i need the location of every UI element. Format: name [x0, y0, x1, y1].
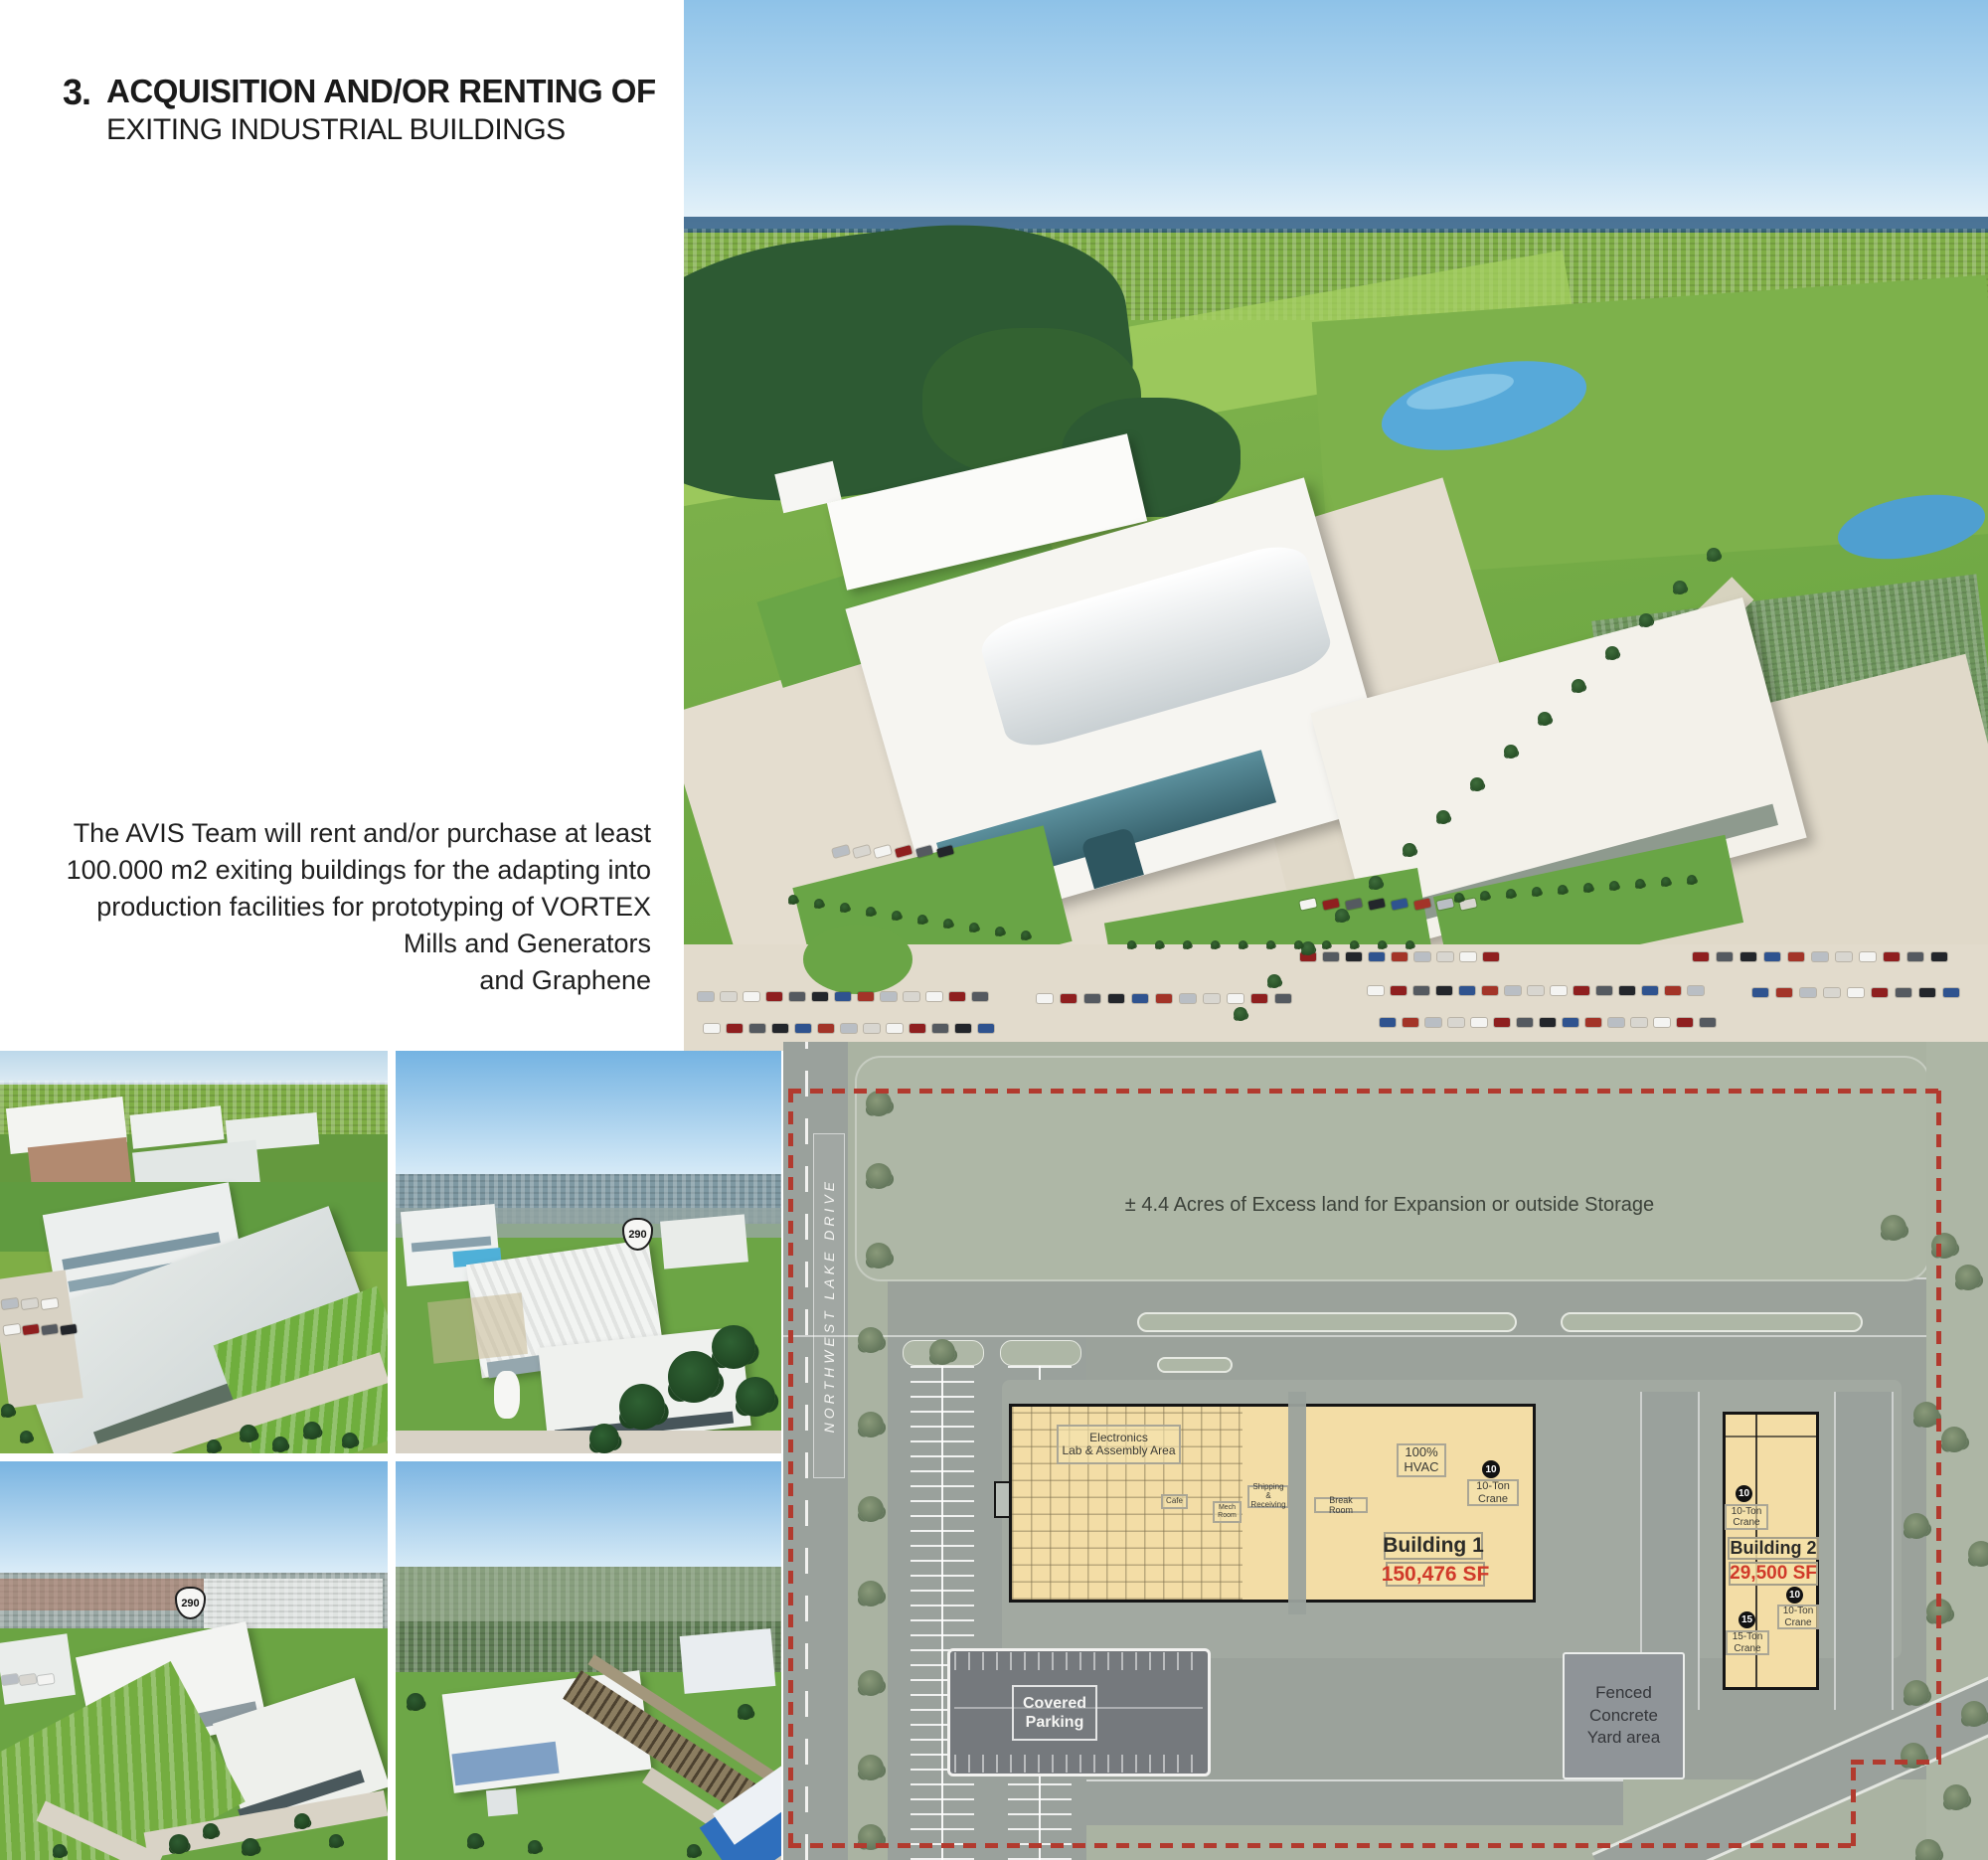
crane-badge-15: 15	[1739, 1611, 1755, 1628]
break-room-label: Break Room	[1314, 1497, 1368, 1513]
tree-icon	[1183, 940, 1192, 949]
car-icon	[1654, 1018, 1670, 1027]
crane-badge-10: 10	[1482, 1460, 1500, 1478]
break-room-text: Break Room	[1316, 1495, 1366, 1515]
car-icon	[1392, 952, 1408, 961]
car-icon	[1896, 988, 1911, 997]
tree-icon	[1558, 885, 1568, 895]
tree-icon	[1403, 843, 1416, 857]
tree-icon	[1470, 777, 1484, 791]
crane-b2-3-line1: 15-Ton	[1733, 1631, 1763, 1642]
car-icon	[1436, 986, 1452, 995]
car-icon	[1482, 986, 1498, 995]
tree-icon	[858, 1581, 884, 1606]
intro-paragraph: The AVIS Team will rent and/or purchase …	[35, 815, 651, 999]
car-icon	[1642, 986, 1658, 995]
tree-icon	[1968, 1541, 1988, 1567]
car-icon	[1700, 1018, 1716, 1027]
tree-icon	[929, 1339, 955, 1365]
car-icon	[704, 1024, 720, 1033]
tree-icon	[1406, 940, 1414, 949]
car-icon	[1275, 994, 1291, 1003]
car-icon	[1323, 952, 1339, 961]
warehouse	[0, 1633, 76, 1704]
car-icon	[1369, 952, 1385, 961]
car-icon	[1631, 1018, 1647, 1027]
building-1-connector	[1288, 1392, 1306, 1614]
building-2-name: Building 2	[1728, 1537, 1819, 1560]
car-icon	[881, 992, 897, 1001]
site-plan: Covered Parking Fenced Concrete Yard are…	[783, 1042, 1988, 1860]
tree-icon	[712, 1325, 755, 1369]
electronics-line2: Lab & Assembly Area	[1062, 1444, 1175, 1457]
car-icon	[972, 992, 988, 1001]
car-icon	[1677, 1018, 1693, 1027]
car-icon	[727, 1024, 743, 1033]
street-name-text: NORTHWEST LAKE DRIVE	[821, 1178, 837, 1433]
electronics-line1: Electronics	[1089, 1432, 1148, 1444]
crane-label-b1: 10-Ton Crane	[1467, 1479, 1519, 1506]
tree-icon	[467, 1833, 483, 1849]
tree-icon	[687, 1844, 701, 1858]
shipping-line1: Shipping &	[1249, 1483, 1287, 1501]
tree-icon	[1639, 613, 1653, 627]
car-icon	[1494, 1018, 1510, 1027]
tree-icon	[240, 1425, 257, 1442]
car-icon	[1800, 988, 1816, 997]
entry-median	[803, 925, 912, 994]
car-icon	[1448, 1018, 1464, 1027]
car-icon	[818, 1024, 834, 1033]
car-icon	[1414, 952, 1430, 961]
car-icon	[1540, 1018, 1556, 1027]
drive-aisle	[1834, 1392, 1894, 1710]
tree-icon	[1955, 1265, 1981, 1290]
building-2-area-text: 29,500 SF	[1730, 1563, 1817, 1585]
car-icon	[1251, 994, 1267, 1003]
building-1-name: Building 1	[1384, 1532, 1483, 1560]
tree-icon	[1322, 940, 1331, 949]
car-icon	[1812, 952, 1828, 961]
crane-badge-10: 10	[1786, 1587, 1803, 1604]
tree-icon	[303, 1422, 321, 1439]
building-2-name-text: Building 2	[1731, 1538, 1817, 1559]
warehouse	[660, 1214, 748, 1268]
car-icon	[1740, 952, 1756, 961]
car-icon	[721, 992, 737, 1001]
hvac-line1: 100%	[1405, 1445, 1437, 1460]
tree-icon	[866, 1163, 892, 1189]
car-icon	[1037, 994, 1053, 1003]
section-title-line2: EXITING INDUSTRIAL BUILDINGS	[106, 111, 656, 149]
shipping-receiving-label: Shipping & Receiving	[1247, 1485, 1289, 1508]
car-icon	[949, 992, 965, 1001]
tree-icon	[53, 1844, 67, 1858]
tree-icon	[1155, 940, 1164, 949]
tree-icon	[1504, 745, 1518, 759]
car-icon	[887, 1024, 903, 1033]
covered-parking-line1: Covered	[1023, 1694, 1086, 1713]
covered-parking-stalls	[954, 1652, 1203, 1670]
car-icon	[1824, 988, 1840, 997]
car-icon	[858, 992, 874, 1001]
building-2-wall	[1723, 1436, 1819, 1437]
tree-icon	[943, 919, 953, 929]
car-icon	[1391, 986, 1407, 995]
car-icon	[766, 992, 782, 1001]
hero-aerial-photo	[684, 0, 1988, 1051]
tree-icon	[342, 1433, 358, 1448]
tree-icon	[1350, 940, 1359, 949]
hvac-label: 100% HVAC	[1397, 1443, 1446, 1477]
boundary-left	[788, 1089, 793, 1846]
building-1-entry	[994, 1481, 1011, 1518]
sky	[684, 0, 1988, 229]
car-icon	[772, 1024, 788, 1033]
car-icon	[1528, 986, 1544, 995]
tree-icon	[866, 907, 876, 917]
car-icon	[789, 992, 805, 1001]
tree-icon	[892, 911, 902, 921]
tree-icon	[1454, 893, 1464, 903]
car-icon	[1228, 994, 1243, 1003]
intro-text-panel: 3. ACQUISITION AND/OR RENTING OF EXITING…	[0, 0, 684, 1051]
car-icon	[978, 1024, 994, 1033]
tree-icon	[1239, 940, 1247, 949]
car-icon	[1459, 986, 1475, 995]
mech-line1: Mech	[1219, 1504, 1236, 1512]
tree-icon	[528, 1840, 542, 1854]
car-icon	[1788, 952, 1804, 961]
south-drive	[1086, 1779, 1623, 1827]
tree-icon	[1904, 1513, 1929, 1539]
road-centerline	[805, 1042, 808, 1860]
tree-icon	[1294, 940, 1303, 949]
tree-icon	[272, 1437, 288, 1452]
tree-icon	[169, 1834, 189, 1854]
crane-badge-10: 10	[1736, 1485, 1752, 1502]
car-icon	[1180, 994, 1196, 1003]
car-icon	[1084, 994, 1100, 1003]
tree-icon	[589, 1424, 619, 1453]
car-icon	[698, 992, 714, 1001]
tree-icon	[1635, 879, 1645, 889]
mech-line2: Room	[1218, 1512, 1237, 1520]
boundary-bottom	[788, 1843, 1856, 1848]
car-icon	[1919, 988, 1935, 997]
car-icon	[1884, 952, 1900, 961]
tree-icon	[858, 1327, 884, 1353]
building-1-area: 150,476 SF	[1386, 1562, 1485, 1587]
office-building	[680, 1628, 776, 1694]
tree-icon	[969, 923, 979, 932]
street-name-label: NORTHWEST LAKE DRIVE	[813, 1133, 845, 1478]
building-1-area-text: 150,476 SF	[1382, 1563, 1490, 1587]
fenced-concrete-yard: Fenced Concrete Yard area	[1563, 1652, 1685, 1779]
car-icon	[1368, 986, 1384, 995]
paragraph-line: and Graphene	[35, 962, 651, 999]
tree-icon	[1480, 891, 1490, 901]
landscape-median	[1157, 1357, 1233, 1373]
yard-label-line2: Concrete	[1589, 1705, 1658, 1728]
car-icon	[932, 1024, 948, 1033]
tree-icon	[329, 1834, 343, 1848]
tree-icon	[788, 895, 798, 905]
tree-icon	[1, 1404, 15, 1418]
car-icon	[1752, 988, 1768, 997]
car-icon	[1471, 1018, 1487, 1027]
car-icon	[744, 992, 759, 1001]
boundary-notch-top	[1851, 1760, 1941, 1765]
tree-icon	[1436, 810, 1450, 824]
car-icon	[1563, 1018, 1578, 1027]
car-icon	[749, 1024, 765, 1033]
car-icon	[1204, 994, 1220, 1003]
crane-b1-line2: Crane	[1478, 1493, 1508, 1505]
tree-icon	[207, 1439, 221, 1453]
page: 3. ACQUISITION AND/OR RENTING OF EXITING…	[0, 0, 1988, 1860]
car-icon	[955, 1024, 971, 1033]
tree-icon	[1021, 930, 1031, 940]
tree-icon	[1301, 941, 1315, 955]
tree-icon	[1506, 889, 1516, 899]
aerial-photo-top-right: 290	[396, 1051, 781, 1453]
car-icon	[910, 1024, 925, 1033]
aerial-photo-bottom-left: 290	[0, 1461, 388, 1860]
covered-parking-label: Covered Parking	[1012, 1685, 1097, 1741]
shed	[486, 1788, 518, 1817]
curb-island	[1000, 1340, 1081, 1366]
tree-icon	[1931, 1233, 1957, 1259]
excess-land-note: ± 4.4 Acres of Excess land for Expansion…	[1111, 1194, 1668, 1217]
tree-icon	[736, 1377, 775, 1417]
tree-icon	[1904, 1680, 1929, 1706]
tree-icon	[1267, 974, 1281, 988]
parking-stall-divider	[941, 1360, 943, 1860]
section-title: ACQUISITION AND/OR RENTING OF EXITING IN…	[106, 72, 656, 149]
crane-b2-1-line1: 10-Ton	[1732, 1506, 1762, 1517]
tree-icon	[1673, 581, 1687, 594]
car-icon	[1517, 1018, 1533, 1027]
tree-icon	[1901, 1743, 1926, 1769]
tree-icon	[858, 1412, 884, 1437]
crane-b1-line1: 10-Ton	[1476, 1480, 1510, 1492]
crane-b2-3-line2: Crane	[1734, 1643, 1760, 1654]
crane-b2-1-line2: Crane	[1733, 1517, 1759, 1528]
car-icon	[1836, 952, 1852, 961]
sky	[0, 1461, 388, 1575]
car-icon	[1764, 952, 1780, 961]
sky	[396, 1051, 781, 1178]
tree-icon	[858, 1496, 884, 1522]
car-icon	[1061, 994, 1077, 1003]
tree-icon	[1605, 646, 1619, 660]
building-1-name-text: Building 1	[1383, 1534, 1484, 1558]
car-icon	[1585, 1018, 1601, 1027]
paragraph-line: production facilities for prototyping of…	[35, 889, 651, 926]
car-icon	[1346, 952, 1362, 961]
tree-icon	[1266, 940, 1275, 949]
car-icon	[1693, 952, 1709, 961]
car-icon	[835, 992, 851, 1001]
building-2-area: 29,500 SF	[1729, 1562, 1818, 1586]
crane-label-b2-1: 10-Ton Crane	[1725, 1504, 1768, 1530]
electronics-lab-label: Electronics Lab & Assembly Area	[1057, 1425, 1181, 1464]
car-icon	[1931, 952, 1947, 961]
tree-icon	[1538, 712, 1552, 726]
section-title-line1: ACQUISITION AND/OR RENTING OF	[106, 72, 656, 111]
tree-icon	[1583, 883, 1593, 893]
tree-icon	[1127, 940, 1136, 949]
tree-icon	[1335, 909, 1349, 923]
covered-parking-stalls	[954, 1755, 1203, 1773]
tree-icon	[917, 915, 927, 925]
tree-icon	[840, 903, 850, 913]
car-icon	[926, 992, 942, 1001]
covered-parking-line2: Parking	[1026, 1713, 1084, 1732]
silo-tank	[494, 1371, 520, 1419]
tree-icon	[668, 1351, 720, 1403]
tree-icon	[1661, 877, 1671, 887]
car-icon	[1619, 986, 1635, 995]
tree-icon	[619, 1384, 665, 1430]
car-icon	[1156, 994, 1172, 1003]
tree-icon	[1961, 1701, 1987, 1727]
car-icon	[1403, 1018, 1418, 1027]
tree-icon	[866, 1243, 892, 1268]
tree-icon	[738, 1704, 753, 1720]
sky	[0, 1051, 388, 1085]
tree-icon	[1941, 1427, 1967, 1452]
cafe-label: Cafe	[1161, 1494, 1188, 1509]
crane-b2-2-line1: 10-Ton	[1783, 1606, 1814, 1616]
car-icon	[1132, 994, 1148, 1003]
tree-icon	[814, 899, 824, 909]
tree-icon	[242, 1838, 259, 1856]
car-icon	[795, 1024, 811, 1033]
crane-label-b2-3: 15-Ton Crane	[1726, 1630, 1769, 1655]
crane-label-b2-2: 10-Ton Crane	[1777, 1605, 1819, 1629]
tree-icon	[1572, 679, 1585, 693]
tree-icon	[1881, 1215, 1906, 1241]
tree-icon	[858, 1755, 884, 1780]
tree-icon	[1234, 1007, 1247, 1021]
tree-icon	[866, 1091, 892, 1116]
car-icon	[1848, 988, 1864, 997]
landscape-median	[1137, 1312, 1517, 1332]
tree-icon	[294, 1813, 310, 1829]
car-icon	[1574, 986, 1589, 995]
tree-icon	[995, 927, 1005, 936]
car-icon	[1437, 952, 1453, 961]
boundary-notch-side	[1851, 1760, 1856, 1846]
car-icon	[1860, 952, 1876, 961]
hvac-line2: HVAC	[1404, 1460, 1438, 1475]
boundary-top	[788, 1089, 1941, 1094]
sky	[396, 1461, 781, 1571]
car-icon	[1688, 986, 1704, 995]
tree-icon	[407, 1693, 424, 1711]
car-icon	[1413, 986, 1429, 995]
car-icon	[1596, 986, 1612, 995]
tree-icon	[858, 1670, 884, 1696]
paragraph-line: 100.000 m2 exiting buildings for the ada…	[35, 852, 651, 889]
car-icon	[1872, 988, 1888, 997]
tree-icon	[1707, 548, 1721, 562]
car-icon	[1425, 1018, 1441, 1027]
tree-icon	[1943, 1784, 1969, 1810]
car-icon	[864, 1024, 880, 1033]
section-number: 3.	[63, 72, 90, 149]
tree-icon	[1687, 875, 1697, 885]
car-icon	[1776, 988, 1792, 997]
car-icon	[812, 992, 828, 1001]
boundary-right	[1936, 1089, 1941, 1760]
suburb-haze	[396, 1567, 781, 1621]
car-icon	[1483, 952, 1499, 961]
tree-icon	[1211, 940, 1220, 949]
car-icon	[1717, 952, 1733, 961]
dirt-yard	[427, 1292, 528, 1364]
tree-icon	[1609, 881, 1619, 891]
car-icon	[1907, 952, 1923, 961]
aerial-photo-top-left	[0, 1051, 388, 1453]
car-icon	[1460, 952, 1476, 961]
tree-icon	[1369, 876, 1383, 890]
crane-b2-2-line2: Crane	[1784, 1617, 1811, 1628]
car-icon	[1608, 1018, 1624, 1027]
cafe-text: Cafe	[1166, 1497, 1183, 1506]
tree-icon	[1915, 1839, 1941, 1860]
section-heading: 3. ACQUISITION AND/OR RENTING OF EXITING…	[63, 72, 656, 149]
yard-label-line1: Fenced	[1595, 1682, 1652, 1705]
tree-icon	[20, 1431, 33, 1443]
paragraph-line: Mills and Generators	[35, 926, 651, 962]
mech-room-label: Mech Room	[1213, 1501, 1242, 1523]
car-icon	[1380, 1018, 1396, 1027]
tree-icon	[203, 1823, 219, 1839]
paragraph-line: The AVIS Team will rent and/or purchase …	[35, 815, 651, 852]
landscape-median	[1561, 1312, 1863, 1332]
shipping-line2: Receiving	[1250, 1501, 1285, 1510]
tree-icon	[1378, 940, 1387, 949]
car-icon	[1108, 994, 1124, 1003]
car-icon	[1551, 986, 1567, 995]
road	[396, 1431, 781, 1453]
yard-label-line3: Yard area	[1587, 1727, 1660, 1750]
car-icon	[1943, 988, 1959, 997]
tree-icon	[1532, 887, 1542, 897]
aerial-photo-bottom-right	[396, 1461, 781, 1860]
car-icon	[1505, 986, 1521, 995]
car-icon	[841, 1024, 857, 1033]
car-icon	[1665, 986, 1681, 995]
car-icon	[904, 992, 919, 1001]
